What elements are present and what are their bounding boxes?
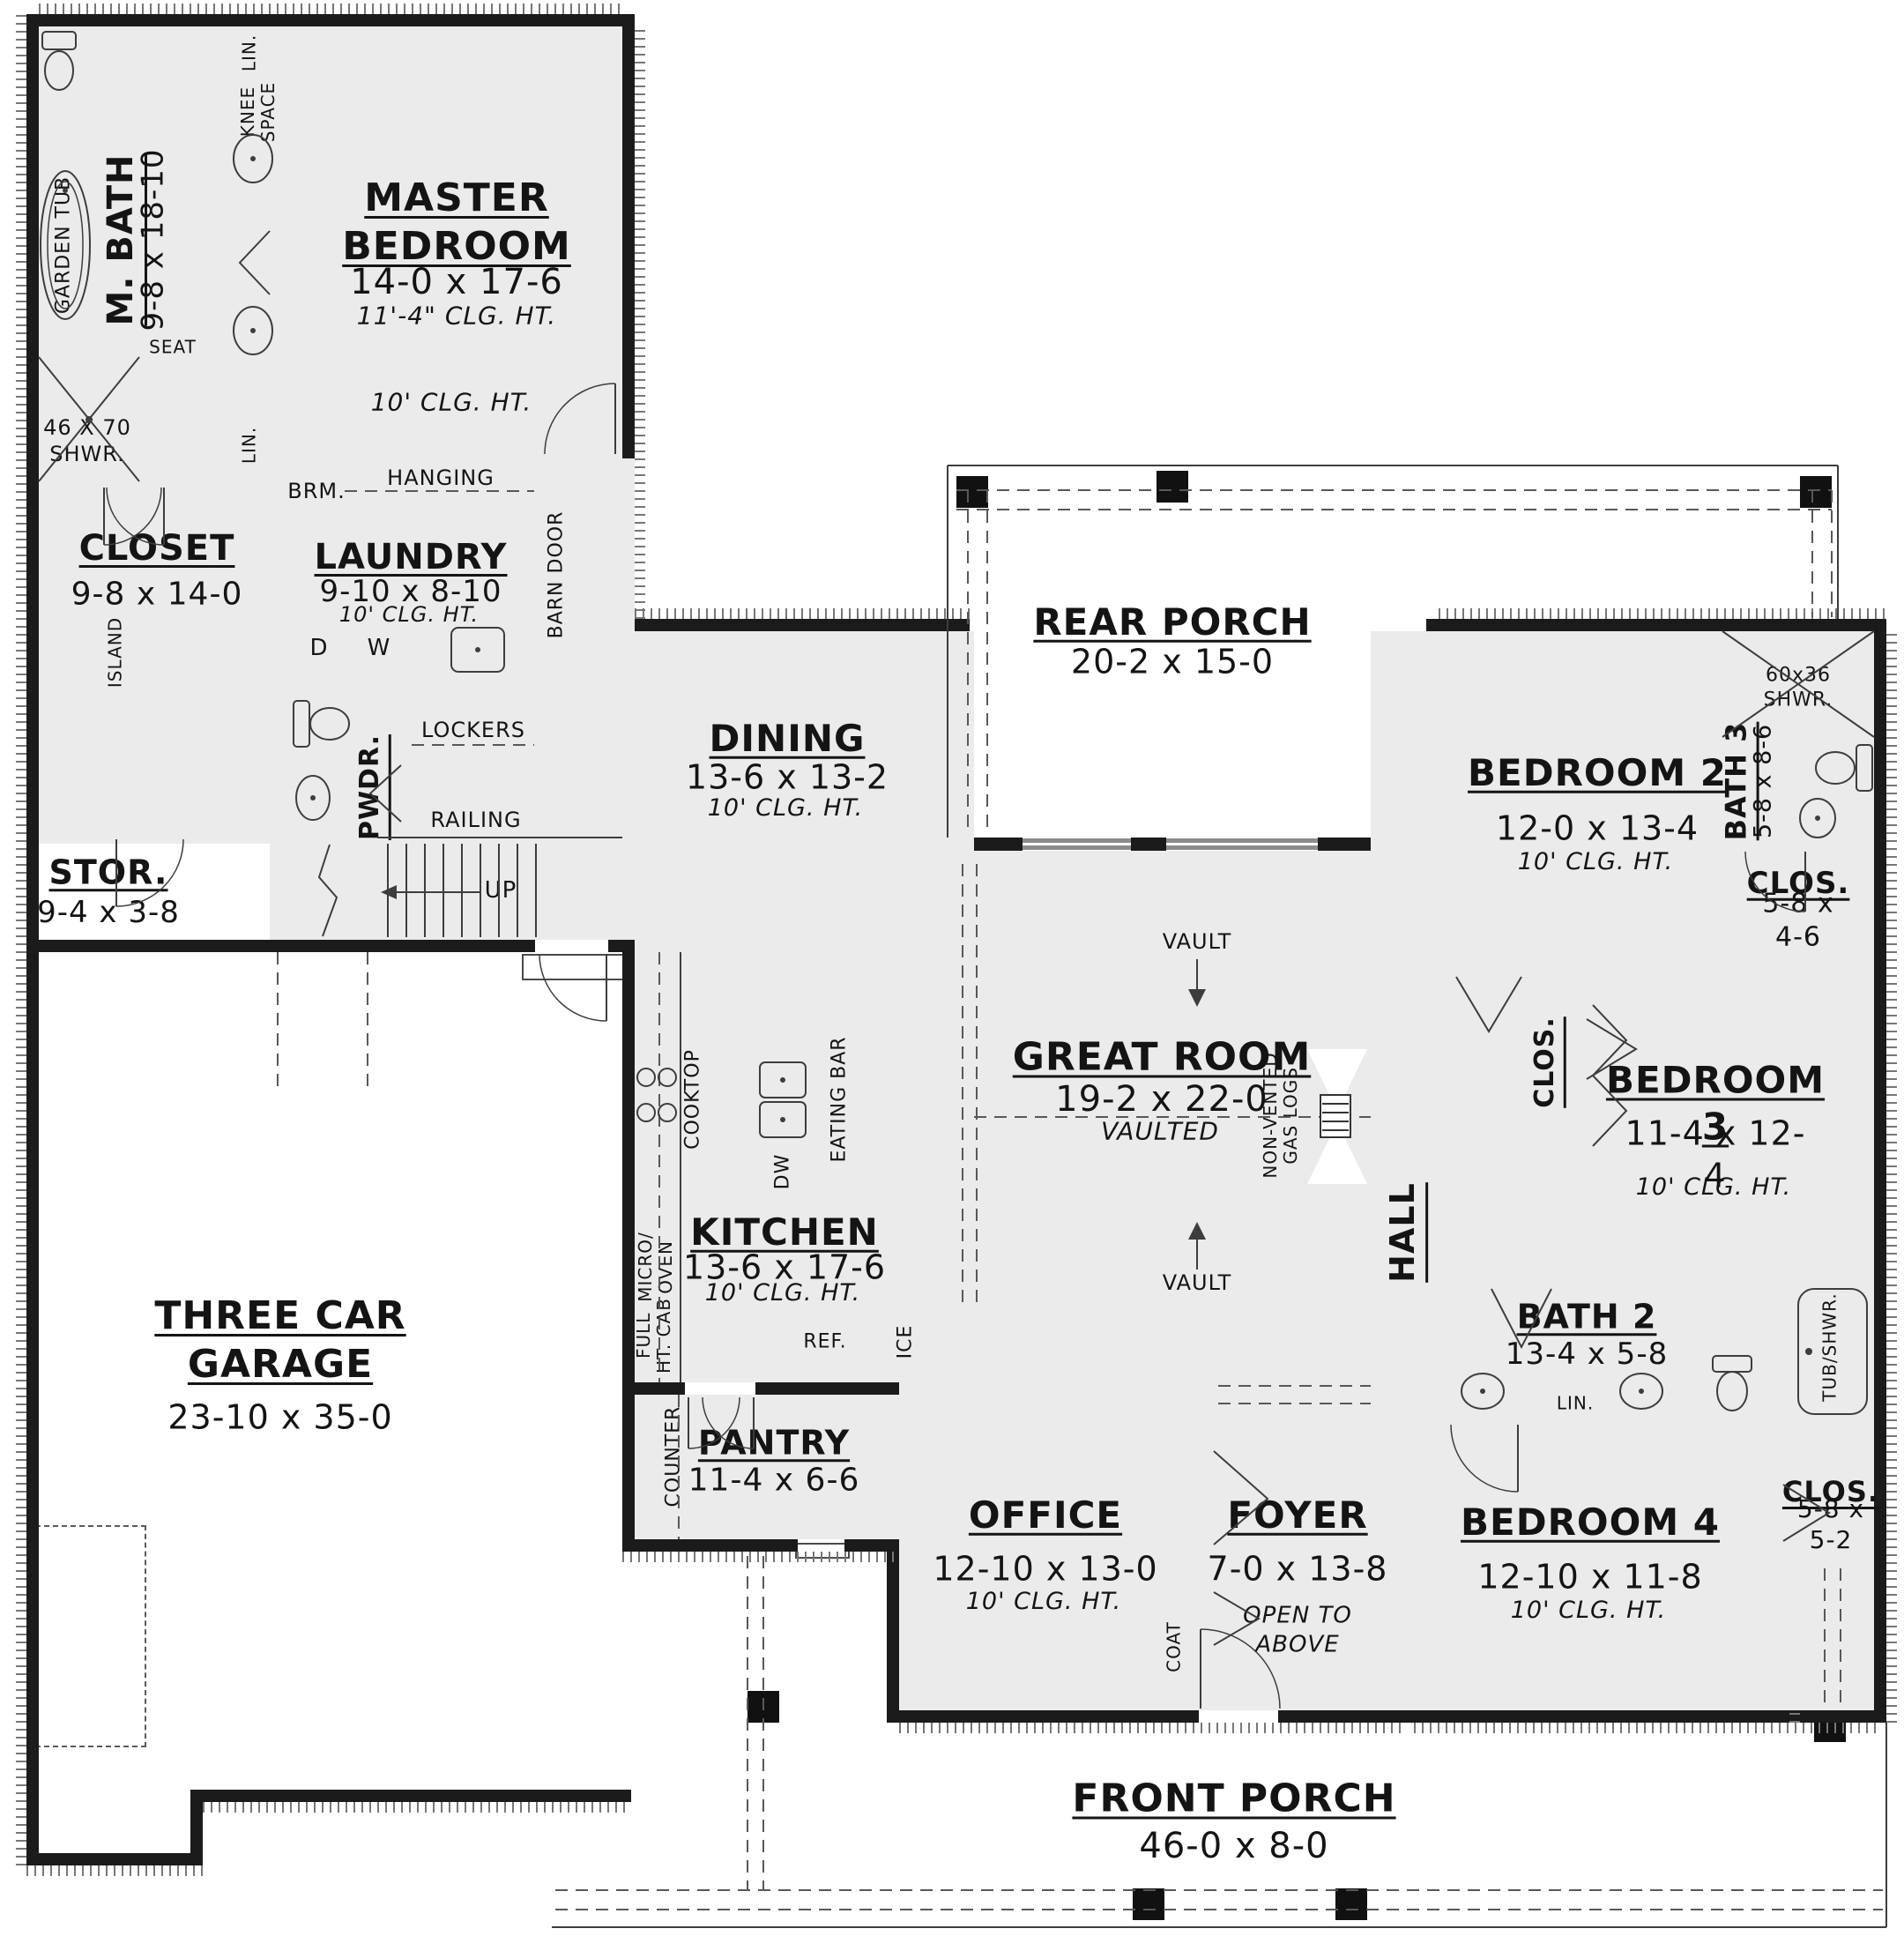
plan-linework	[0, 0, 1904, 1936]
floor-plan: M. BATH 9-8 x 18-10 GARDEN TUB SEAT 46 X…	[0, 0, 1904, 1936]
